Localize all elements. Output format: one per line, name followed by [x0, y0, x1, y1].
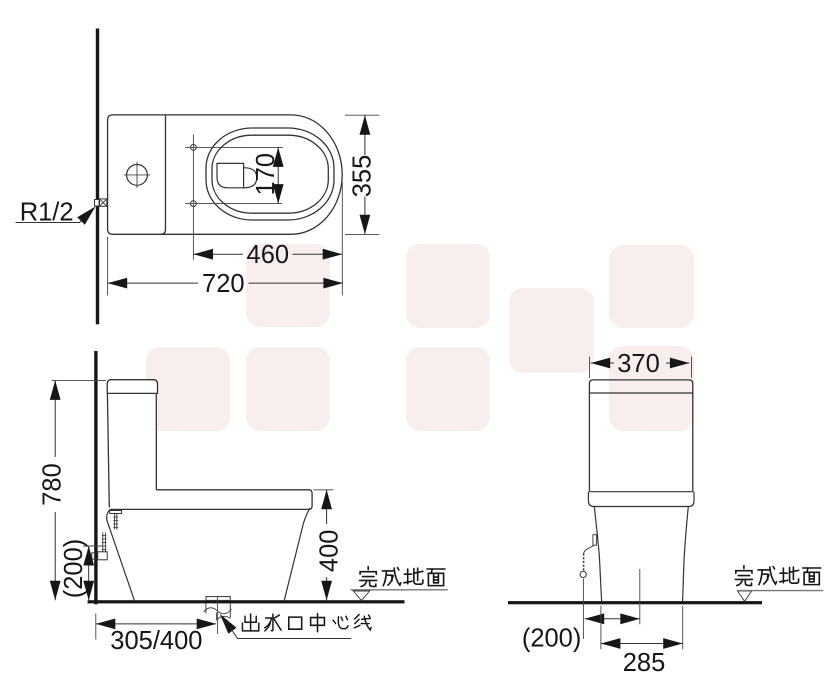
- svg-text:170: 170: [252, 153, 280, 196]
- svg-text:305/400: 305/400: [110, 627, 202, 655]
- svg-text:285: 285: [623, 649, 666, 677]
- svg-text:400: 400: [316, 530, 344, 573]
- svg-text:(200): (200): [522, 625, 582, 653]
- svg-text:720: 720: [202, 270, 245, 298]
- svg-text:370: 370: [617, 350, 660, 378]
- svg-text:(200): (200): [60, 539, 88, 599]
- svg-text:780: 780: [39, 463, 67, 506]
- svg-text:355: 355: [349, 155, 377, 198]
- svg-text:460: 460: [247, 241, 290, 269]
